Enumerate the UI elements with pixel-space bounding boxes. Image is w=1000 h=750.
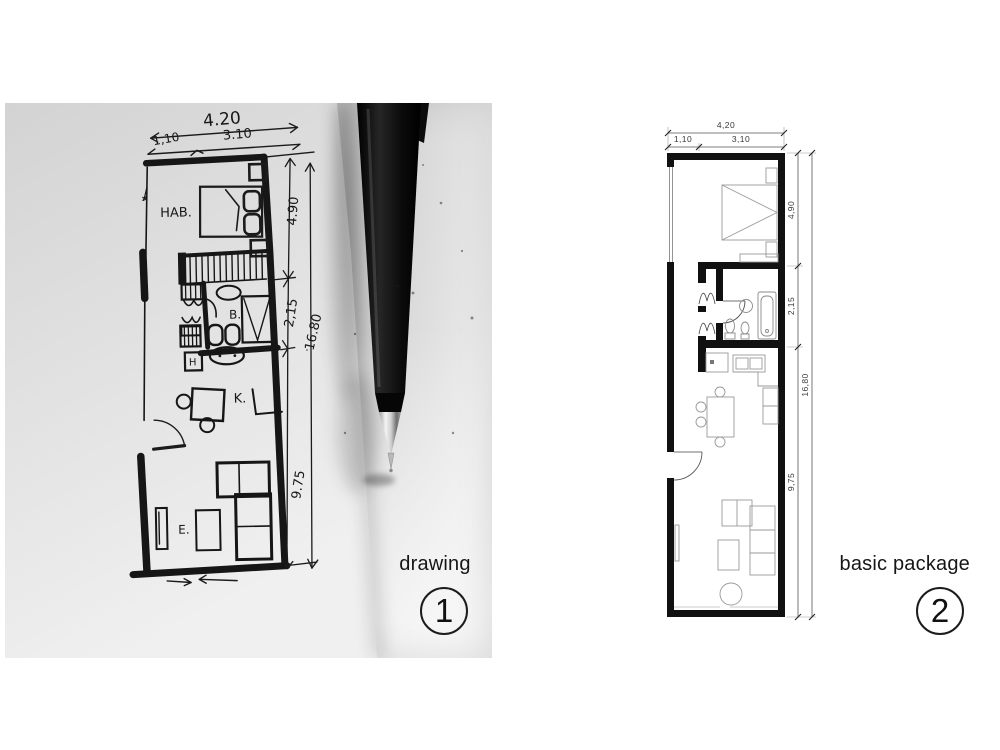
pen-shadow-upper <box>331 103 359 403</box>
sketch-room-living: E. <box>178 523 190 537</box>
sketch-dim-bedroom: 4.90 <box>285 196 302 226</box>
cad-chair <box>715 387 725 397</box>
pen-cone <box>379 412 401 455</box>
cad-dim-width-total: 4,20 <box>717 120 735 130</box>
pen <box>331 103 429 493</box>
cad-dim-width-right: 3,10 <box>732 134 750 144</box>
cad-dim-living: 9,75 <box>786 473 796 491</box>
pen-grip <box>375 393 405 412</box>
caption-drawing-label: drawing <box>383 553 487 576</box>
figure-2-badge: 2 <box>916 587 964 635</box>
figure-1-badge: 1 <box>420 587 468 635</box>
presentation-page: 4.20 1,10 3.10 <box>0 0 1000 750</box>
photo-panel: 4.20 1,10 3.10 <box>5 103 492 658</box>
pen-tip-shadow <box>363 474 395 486</box>
sketch-room-bedroom: HAB. <box>160 205 192 221</box>
cad-panel: 4,20 1,10 3,10 <box>500 103 1000 658</box>
cad-entry-door <box>674 452 702 480</box>
cad-closet-door-2 <box>699 323 715 334</box>
sketch-dim-width-right: 3.10 <box>222 126 252 144</box>
cad-tv-bench <box>675 525 679 561</box>
cad-appliance-1 <box>763 388 778 406</box>
cad-dining-table <box>707 397 734 437</box>
pen-ballpoint <box>389 469 392 472</box>
cad-dim-bedroom: 4,90 <box>786 201 796 219</box>
pen-needle <box>388 453 394 469</box>
cad-dim-width-left: 1,10 <box>674 134 692 144</box>
cad-coffee-table <box>718 540 739 570</box>
cad-kitchen-sink <box>733 355 765 372</box>
cad-doors <box>674 293 745 480</box>
cad-chair <box>696 417 706 427</box>
cad-chair <box>715 437 725 447</box>
cad-living <box>674 500 778 607</box>
cad-walls <box>667 153 785 617</box>
cad-appliance-2 <box>763 406 778 424</box>
cad-floor-plan-svg: 4,20 1,10 3,10 <box>630 110 850 650</box>
cad-sofa-chaise <box>750 506 775 575</box>
cad-counter <box>733 372 778 386</box>
cad-bathroom-fixtures <box>725 292 776 339</box>
cad-bed <box>722 168 777 257</box>
cad-basin <box>740 300 753 313</box>
paper-sheet <box>5 103 377 658</box>
cad-dining <box>696 387 734 447</box>
caption-package-label: basic package <box>828 553 970 576</box>
figure-1-number: 1 <box>435 592 453 630</box>
pen-body <box>357 103 421 393</box>
sketch-room-hall: H <box>189 357 197 368</box>
sketch-room-bathroom: B. <box>229 307 241 321</box>
cad-dim-total-height: 16,80 <box>800 373 810 396</box>
sketch-room-kitchen: K. <box>234 391 247 406</box>
cad-window-bedroom <box>670 167 673 262</box>
cad-pouf <box>720 583 742 605</box>
cad-wardrobe <box>740 254 778 262</box>
cad-bathroom-door <box>723 301 745 323</box>
cad-furniture <box>674 168 778 607</box>
cad-storage-box <box>706 353 728 372</box>
cad-dim-bath: 2,15 <box>786 297 796 315</box>
cad-closet-door-1 <box>699 293 715 304</box>
cad-chair <box>696 402 706 412</box>
cad-bidet <box>741 322 749 339</box>
figure-2-number: 2 <box>931 592 949 630</box>
